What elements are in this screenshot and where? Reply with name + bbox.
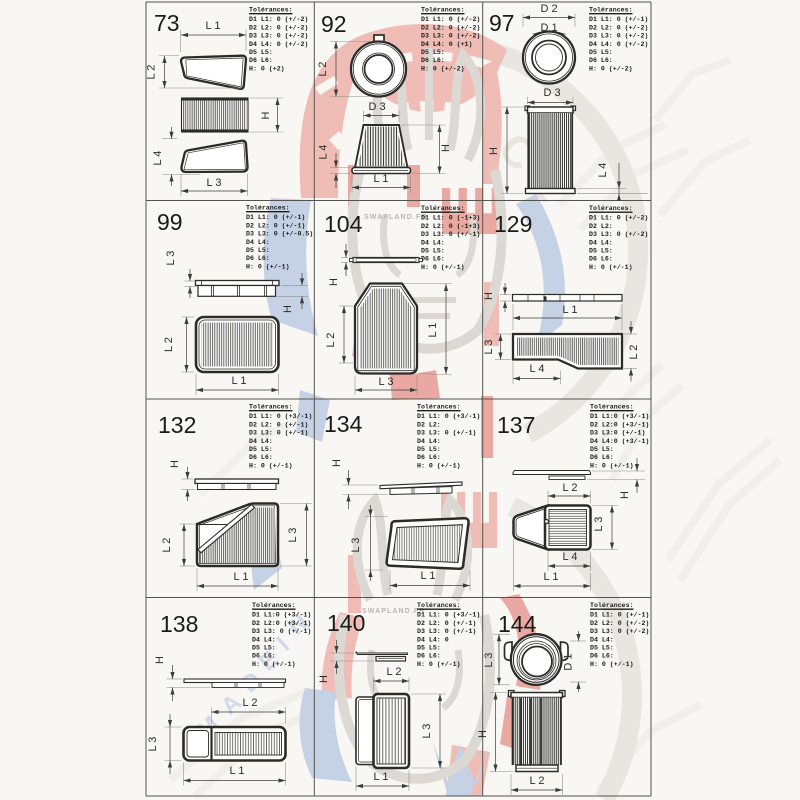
svg-text:D3 L3: 0 (+/-2): D3 L3: 0 (+/-2) — [590, 628, 649, 635]
svg-text:D2 L2: 0 (+/-1): D2 L2: 0 (+/-1) — [417, 620, 476, 627]
svg-text:D 3: D 3 — [543, 87, 560, 99]
svg-text:D2 L2: 0 (+/-2): D2 L2: 0 (+/-2) — [590, 620, 649, 627]
svg-text:H: 0 (+/-1): H: 0 (+/-1) — [421, 264, 465, 271]
svg-text:H: H — [619, 491, 631, 499]
svg-text:D3 L3: 0 (+/-1): D3 L3: 0 (+/-1) — [252, 628, 311, 635]
svg-text:L 1: L 1 — [374, 771, 389, 783]
svg-text:L 2: L 2 — [530, 775, 545, 787]
svg-text:104: 104 — [324, 211, 363, 237]
svg-text:H: H — [488, 147, 500, 155]
svg-text:D6 L6:: D6 L6: — [246, 255, 270, 262]
svg-text:D2 L2: 0 (+/-1): D2 L2: 0 (+/-1) — [249, 421, 308, 428]
svg-text:D1 L1:0 (+3/-1): D1 L1:0 (+3/-1) — [590, 413, 649, 420]
svg-text:73: 73 — [154, 10, 180, 36]
svg-text:D4 L4:0 (+3/-1): D4 L4:0 (+3/-1) — [590, 438, 649, 445]
svg-text:L 2: L 2 — [317, 62, 329, 77]
svg-text:D3 L3: 0 (+/-2): D3 L3: 0 (+/-2) — [421, 33, 480, 40]
svg-text:D5 L5:: D5 L5: — [421, 248, 445, 255]
svg-text:H: H — [318, 675, 330, 683]
svg-text:129: 129 — [494, 211, 532, 237]
svg-text:D6 L6:: D6 L6: — [417, 454, 441, 461]
svg-text:L 3: L 3 — [147, 737, 159, 752]
svg-text:H: 0 (+/-1): H: 0 (+/-1) — [249, 462, 293, 469]
svg-text:Tolérances:: Tolérances: — [249, 7, 293, 14]
svg-text:H: H — [483, 292, 495, 300]
svg-text:L 1: L 1 — [563, 304, 578, 316]
svg-text:D2 L2:0 (+3/-1): D2 L2:0 (+3/-1) — [252, 620, 311, 627]
svg-text:D 2: D 2 — [540, 3, 557, 15]
svg-text:L 1: L 1 — [206, 20, 221, 32]
svg-text:Tolérances:: Tolérances: — [589, 7, 633, 14]
svg-text:H: H — [440, 144, 452, 152]
svg-text:L 1: L 1 — [374, 173, 389, 185]
svg-text:L 2: L 2 — [163, 337, 175, 352]
svg-text:Tolérances:: Tolérances: — [417, 404, 461, 411]
svg-text:138: 138 — [160, 611, 198, 637]
svg-text:L 1: L 1 — [234, 571, 249, 583]
svg-text:D3 L3: 0 (+/-1): D3 L3: 0 (+/-1) — [249, 430, 308, 437]
svg-text:L 4: L 4 — [318, 145, 330, 160]
svg-text:Tolérances:: Tolérances: — [590, 404, 634, 411]
svg-text:D4 L4:: D4 L4: — [421, 239, 445, 246]
svg-text:140: 140 — [327, 610, 365, 636]
svg-text:D3 L3: 0 (+/-2): D3 L3: 0 (+/-2) — [249, 33, 308, 40]
svg-text:D6 L6:: D6 L6: — [249, 454, 273, 461]
svg-text:D5 L5:: D5 L5: — [421, 49, 445, 56]
svg-text:D1 L1:0 (+3/-1): D1 L1:0 (+3/-1) — [252, 612, 311, 619]
svg-text:D4 L4:: D4 L4: — [590, 636, 614, 643]
svg-text:99: 99 — [157, 209, 183, 235]
svg-text:D6 L6:: D6 L6: — [417, 653, 441, 660]
svg-text:D5 L5:: D5 L5: — [249, 446, 273, 453]
svg-text:D6 L6:: D6 L6: — [590, 653, 614, 660]
svg-text:L 2: L 2 — [628, 345, 640, 360]
svg-text:H: 0 (+/-2): H: 0 (+/-2) — [589, 65, 633, 72]
svg-text:D1 L1: 0 (+/-1): D1 L1: 0 (+/-1) — [246, 214, 305, 221]
svg-text:Tolérances:: Tolérances: — [417, 602, 461, 609]
svg-text:D4 L4:: D4 L4: — [246, 239, 270, 246]
svg-text:D1 L1: 0 (+3/-1): D1 L1: 0 (+3/-1) — [417, 612, 480, 619]
svg-text:H: 0 (+2): H: 0 (+2) — [249, 65, 285, 72]
svg-text:L 2: L 2 — [146, 65, 158, 80]
svg-text:137: 137 — [497, 412, 535, 438]
svg-text:H: 0 (+/-1): H: 0 (+/-1) — [246, 263, 290, 270]
svg-text:D5 L5:: D5 L5: — [249, 49, 273, 56]
svg-text:D2 L2: 0 (+/-2): D2 L2: 0 (+/-2) — [421, 24, 480, 31]
svg-text:L 3: L 3 — [165, 251, 177, 266]
svg-text:H: 0 (+/-1): H: 0 (+/-1) — [590, 661, 634, 668]
svg-text:D1 L1: 0 (+3/-1): D1 L1: 0 (+3/-1) — [249, 413, 312, 420]
svg-text:L 3: L 3 — [350, 538, 362, 553]
svg-text:L 1: L 1 — [544, 571, 559, 583]
svg-text:D3 L3: 0 (+/-2): D3 L3: 0 (+/-2) — [589, 33, 648, 40]
svg-text:Tolérances:: Tolérances: — [590, 602, 634, 609]
svg-text:L 3: L 3 — [593, 517, 605, 532]
svg-text:D5 L5:: D5 L5: — [590, 446, 614, 453]
svg-text:D1 L1: 0 (+/-1): D1 L1: 0 (+/-1) — [590, 612, 649, 619]
svg-text:Tolérances:: Tolérances: — [249, 404, 293, 411]
svg-text:L 3: L 3 — [287, 528, 299, 543]
svg-text:D1 L1: 0 (+/-2): D1 L1: 0 (+/-2) — [421, 16, 480, 23]
svg-text:D6 L6:: D6 L6: — [421, 256, 445, 263]
svg-text:Tolérances:: Tolérances: — [421, 205, 465, 212]
svg-text:H: 0 (+/-1): H: 0 (+/-1) — [417, 661, 461, 668]
svg-text:D5 L5:: D5 L5: — [590, 645, 614, 652]
svg-text:D6 L6:: D6 L6: — [590, 454, 614, 461]
svg-text:D4 L4: 0 (+1): D4 L4: 0 (+1) — [421, 41, 472, 48]
svg-text:D2 L2: 0 (+/-2): D2 L2: 0 (+/-2) — [589, 24, 648, 31]
svg-text:D6 L6:: D6 L6: — [421, 57, 445, 64]
svg-text:L 2: L 2 — [161, 538, 173, 553]
svg-text:D4 L4:: D4 L4: — [252, 636, 276, 643]
svg-text:D3 L3: 0 (+/-1): D3 L3: 0 (+/-1) — [417, 628, 476, 635]
svg-text:D6 L6:: D6 L6: — [589, 57, 613, 64]
svg-text:SWAPLAND.FR: SWAPLAND.FR — [364, 214, 427, 221]
svg-text:L 1: L 1 — [427, 323, 439, 338]
svg-text:L 1: L 1 — [230, 765, 245, 777]
svg-text:H: H — [477, 730, 489, 738]
svg-text:D4 L4: 0: D4 L4: 0 — [417, 636, 449, 643]
svg-text:Tolérances:: Tolérances: — [252, 602, 296, 609]
svg-text:Tolérances:: Tolérances: — [421, 7, 465, 14]
svg-text:H: 0 (+/-1): H: 0 (+/-1) — [590, 462, 634, 469]
svg-text:D1 L1: 0 (+/-1): D1 L1: 0 (+/-1) — [589, 16, 648, 23]
svg-text:D1 L1: 0 (+/-2): D1 L1: 0 (+/-2) — [589, 215, 648, 222]
svg-text:134: 134 — [324, 411, 363, 437]
svg-text:H: 0 (+/-1): H: 0 (+/-1) — [252, 661, 296, 668]
svg-text:H: H — [328, 278, 340, 286]
svg-text:D5 L5:: D5 L5: — [589, 248, 613, 255]
svg-text:H: H — [154, 656, 166, 664]
svg-text:D5 L5:: D5 L5: — [417, 645, 441, 652]
svg-text:D6 L6:: D6 L6: — [249, 57, 273, 64]
svg-text:L 2: L 2 — [387, 666, 402, 678]
svg-text:D6 L6:: D6 L6: — [589, 256, 613, 263]
svg-text:L 4: L 4 — [530, 363, 545, 375]
svg-text:D2 L2:: D2 L2: — [417, 421, 441, 428]
svg-text:D 1: D 1 — [563, 653, 575, 670]
svg-text:D3 L3: 0 (+/-0.5): D3 L3: 0 (+/-0.5) — [246, 231, 313, 238]
svg-text:D5 L5:: D5 L5: — [246, 247, 270, 254]
svg-text:D2 L2: 0 (+/-1): D2 L2: 0 (+/-1) — [246, 222, 305, 229]
svg-text:D1 L1: 0 (+/-2): D1 L1: 0 (+/-2) — [249, 16, 308, 23]
svg-text:D1 L1: 0 (-1+3): D1 L1: 0 (-1+3) — [421, 215, 480, 222]
svg-text:H: H — [260, 111, 272, 119]
svg-text:D6 L6:: D6 L6: — [252, 653, 276, 660]
svg-text:L 2: L 2 — [325, 333, 337, 348]
svg-text:D 3: D 3 — [368, 101, 385, 113]
svg-text:L 2: L 2 — [243, 697, 258, 709]
svg-text:D3 L3:0 (+/-1): D3 L3:0 (+/-1) — [590, 430, 645, 437]
svg-text:92: 92 — [321, 11, 347, 37]
svg-text:H: 0 (+/-1): H: 0 (+/-1) — [417, 462, 461, 469]
svg-text:D4 L4:: D4 L4: — [417, 438, 441, 445]
svg-text:H: 0 (+/-1): H: 0 (+/-1) — [589, 264, 633, 271]
svg-text:144: 144 — [498, 611, 537, 637]
svg-text:D1 L1: 0 (+3/-1): D1 L1: 0 (+3/-1) — [417, 413, 480, 420]
svg-text:D2 L2: 0 (-1+3): D2 L2: 0 (-1+3) — [421, 223, 480, 230]
svg-text:D3 L3: 0 (+/-1): D3 L3: 0 (+/-1) — [421, 231, 480, 238]
svg-text:D5 L5:: D5 L5: — [417, 446, 441, 453]
svg-text:H: H — [169, 460, 181, 468]
svg-text:D2 L2: 0 (+/-2): D2 L2: 0 (+/-2) — [249, 24, 308, 31]
svg-text:D3 L3: 0 (+/-2): D3 L3: 0 (+/-2) — [589, 231, 648, 238]
svg-text:97: 97 — [489, 10, 515, 36]
svg-text:D3 L3: 0 (+/-1): D3 L3: 0 (+/-1) — [417, 430, 476, 437]
svg-text:L 1: L 1 — [421, 570, 436, 582]
svg-text:Tolérances:: Tolérances: — [589, 205, 633, 212]
svg-text:L 3: L 3 — [483, 340, 495, 355]
svg-text:D4 L4:: D4 L4: — [589, 239, 613, 246]
svg-text:D5 L5:: D5 L5: — [589, 49, 613, 56]
svg-text:H: H — [331, 459, 343, 467]
svg-text:D5 L5:: D5 L5: — [252, 645, 276, 652]
svg-text:D4 L4:: D4 L4: — [249, 438, 273, 445]
svg-text:L 4: L 4 — [597, 163, 609, 178]
svg-text:D4 L4: 0 (+/-2): D4 L4: 0 (+/-2) — [249, 41, 308, 48]
svg-text:L 1: L 1 — [232, 375, 247, 387]
svg-text:H: 0 (+/-2): H: 0 (+/-2) — [421, 65, 465, 72]
svg-text:D4 L4: 0 (+/-2): D4 L4: 0 (+/-2) — [589, 41, 648, 48]
svg-text:Tolérances:: Tolérances: — [246, 205, 290, 212]
svg-text:H: H — [282, 305, 294, 313]
svg-text:L 4: L 4 — [563, 551, 578, 563]
svg-text:D2 L2:0 (+3/-1): D2 L2:0 (+3/-1) — [590, 421, 649, 428]
svg-text:L 3: L 3 — [483, 653, 495, 668]
svg-text:D2 L2:: D2 L2: — [589, 223, 613, 230]
svg-text:L 2: L 2 — [563, 482, 578, 494]
svg-text:L 3: L 3 — [421, 724, 433, 739]
svg-text:L 4: L 4 — [152, 151, 164, 166]
svg-text:132: 132 — [158, 412, 196, 438]
svg-text:L 3: L 3 — [207, 177, 222, 189]
svg-text:SWAPLAND.FR: SWAPLAND.FR — [362, 608, 425, 615]
svg-text:L 3: L 3 — [379, 376, 394, 388]
